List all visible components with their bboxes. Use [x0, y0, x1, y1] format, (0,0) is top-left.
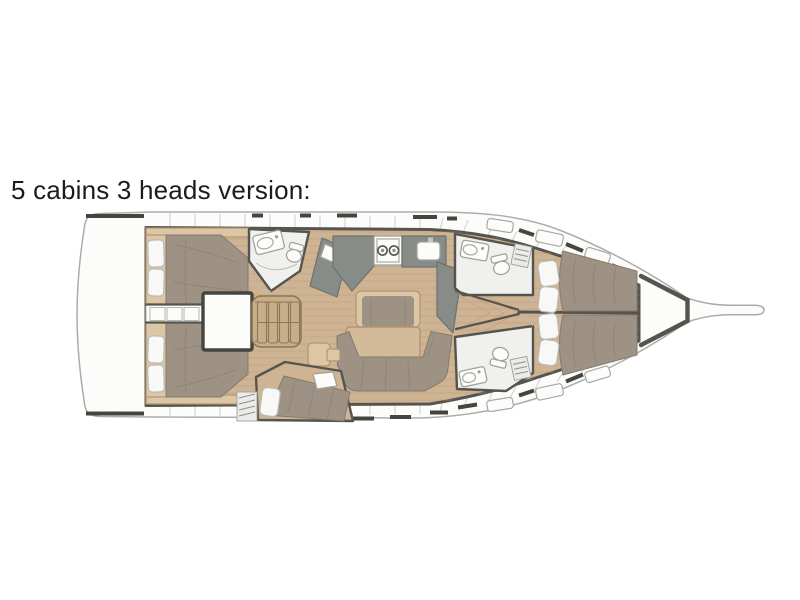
- pillow: [259, 387, 281, 417]
- pillow: [538, 286, 560, 313]
- pillow: [148, 365, 165, 393]
- pillow: [148, 269, 165, 297]
- bed-shelf: [313, 372, 337, 389]
- locker-louver: [510, 356, 531, 380]
- stove: [374, 236, 402, 265]
- forward-head-starboard: [455, 326, 533, 391]
- locker-louver: [511, 244, 532, 268]
- pillow: [538, 313, 560, 340]
- floor-plan-svg: [0, 0, 800, 600]
- pillow: [148, 240, 165, 268]
- page: 5 cabins 3 heads version:: [0, 0, 800, 600]
- pillow: [537, 339, 559, 366]
- companionway-ladder: [252, 296, 301, 347]
- centerline-bulkhead: [519, 312, 639, 313]
- salon-bench: [356, 291, 420, 327]
- faucet-icon: [428, 238, 433, 243]
- pillow: [537, 260, 559, 287]
- forward-cabin-starboard: [537, 313, 637, 375]
- galley-sink: [417, 242, 440, 260]
- wardrobe-louver: [237, 392, 257, 421]
- engine-box: [203, 293, 252, 350]
- pillow: [148, 336, 165, 364]
- corridor-steps: [150, 308, 199, 321]
